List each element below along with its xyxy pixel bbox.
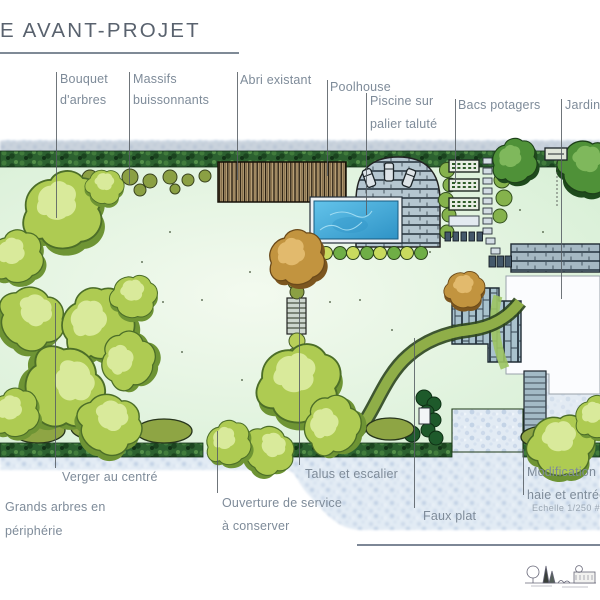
label-grands-arbres: Grands arbres en périphérie <box>5 495 120 543</box>
label-faux-plat: Faux plat <box>423 506 476 527</box>
leader-verger <box>55 303 56 468</box>
leader-bouquet <box>56 72 57 218</box>
label-piscine: Piscine sur palier taluté <box>370 90 454 136</box>
title-underline <box>0 52 239 54</box>
leader-faux-plat <box>414 338 415 508</box>
plan-sheet: E AVANT-PROJET Bouquet d'arbres Massifs … <box>0 0 600 600</box>
label-modification-line1: Modification <box>527 461 600 484</box>
page-title: E AVANT-PROJET <box>0 19 201 43</box>
leader-ouverture <box>217 431 218 493</box>
leader-jardin <box>561 99 562 299</box>
leader-talus <box>299 297 300 465</box>
stone-wall <box>511 244 600 272</box>
leader-bacs <box>455 99 456 183</box>
label-massifs-buissonnants: Massifs buissonnants <box>133 69 225 111</box>
label-abri-existant: Abri existant <box>240 70 311 91</box>
label-ouverture-service: Ouverture de service à conserver <box>222 492 344 538</box>
label-bouquet-arbres: Bouquet d'arbres <box>60 69 132 111</box>
footer-rule <box>357 544 600 546</box>
central-stairs <box>287 298 306 334</box>
label-modification-haie: Modification haie et entrée <box>527 461 600 507</box>
scale-note: Echelle 1/250 # <box>532 503 600 513</box>
entrance-opening <box>452 409 523 452</box>
leader-abri <box>237 72 238 180</box>
pool <box>310 197 402 243</box>
label-jardin: Jardin <box>565 95 600 116</box>
gate-element <box>419 408 430 424</box>
leader-modification <box>523 449 524 495</box>
label-bacs-potagers: Bacs potagers <box>458 95 541 116</box>
label-talus-escalier: Talus et escalier <box>305 464 398 485</box>
leader-poolhouse <box>327 80 328 176</box>
label-verger: Verger au centré <box>62 467 158 488</box>
logo-sketch <box>522 553 600 595</box>
leader-piscine <box>366 93 367 215</box>
